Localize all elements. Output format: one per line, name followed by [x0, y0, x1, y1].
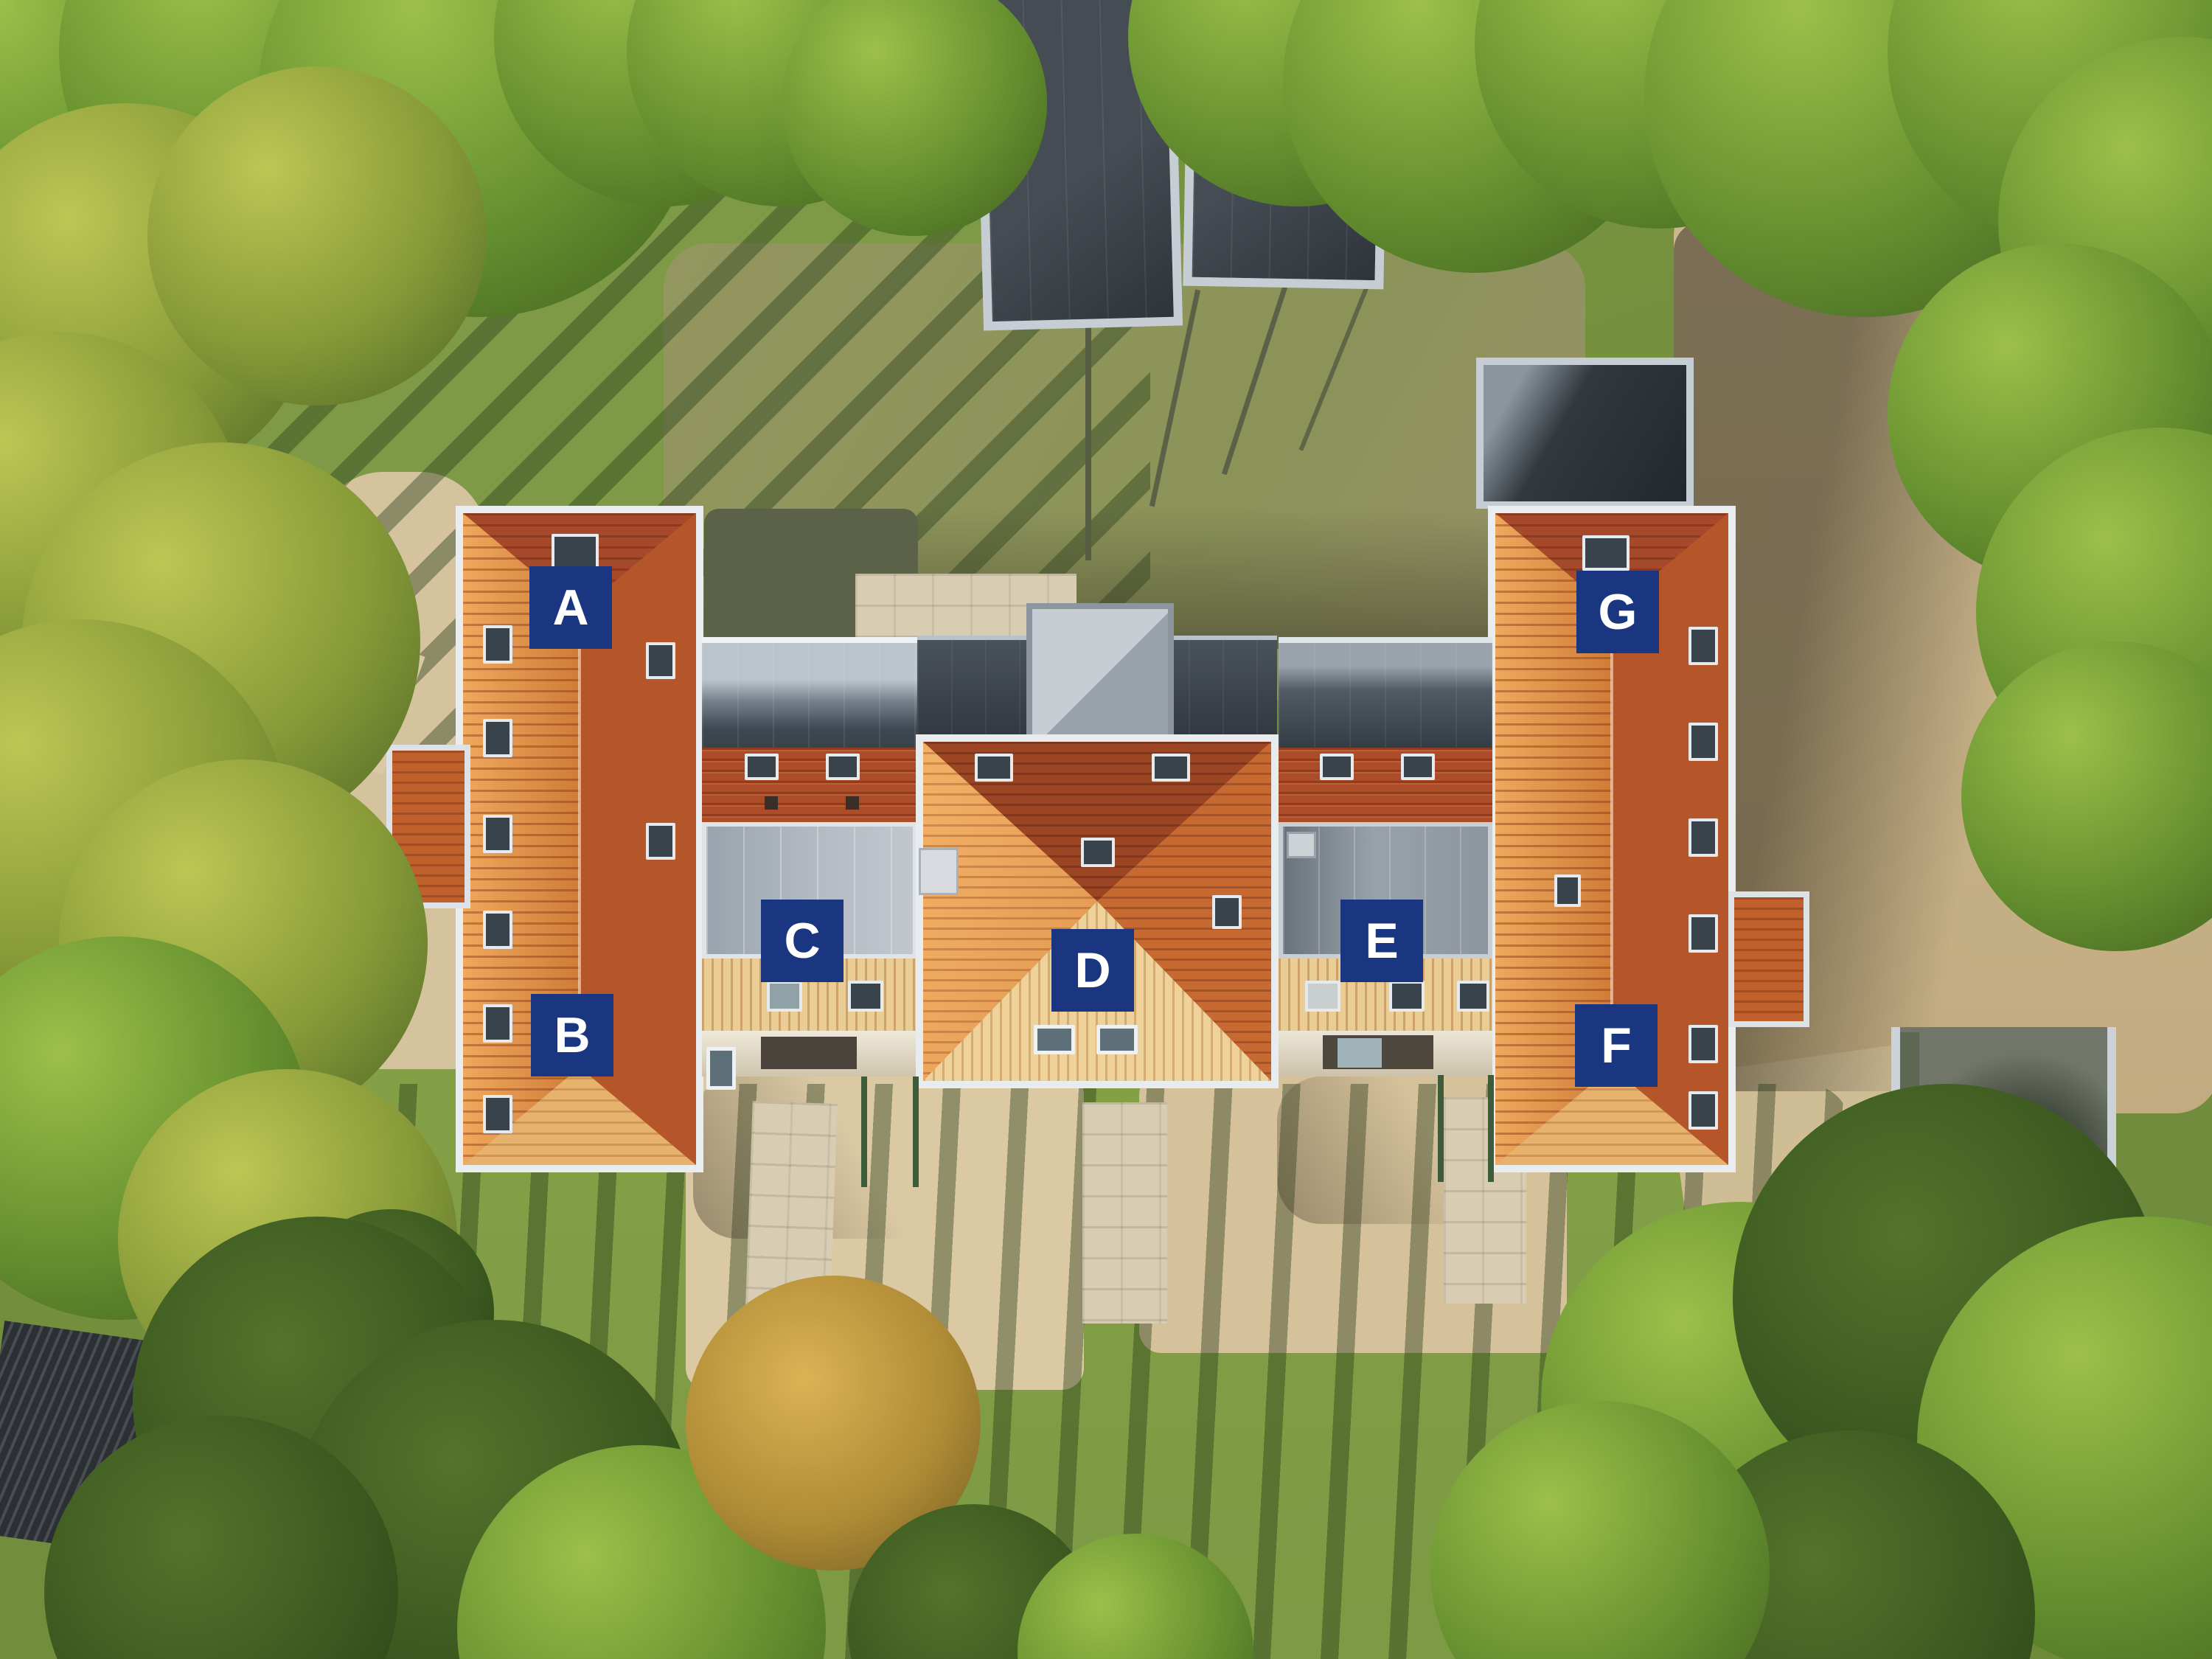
roof-chimney-box	[919, 848, 959, 895]
bar-c-north-flat-roof	[702, 637, 917, 748]
roof-skylight	[1401, 754, 1435, 780]
unit-label-letter: A	[552, 582, 588, 633]
roof-skylight	[1582, 535, 1630, 571]
roof-skylight	[767, 981, 802, 1012]
roof-skylight	[1305, 981, 1340, 1012]
roof-skylight	[826, 754, 860, 780]
roof-skylight	[1457, 981, 1489, 1012]
bar-e-north-flat-roof	[1279, 637, 1492, 748]
tree-canopy	[147, 66, 487, 406]
roof-vent	[846, 796, 859, 810]
wall-window	[706, 1047, 736, 1090]
paver-path-center	[1082, 1102, 1167, 1324]
roof-window	[1688, 914, 1718, 953]
roof-skylight	[848, 981, 883, 1012]
roof-window	[1688, 1091, 1718, 1130]
roof-window	[1688, 627, 1718, 665]
unit-label-b: B	[531, 994, 613, 1077]
roof-skylight	[552, 534, 599, 569]
unit-label-letter: G	[1599, 587, 1638, 637]
roof-window	[1688, 818, 1718, 857]
wall-window	[1034, 1025, 1075, 1054]
roof-window	[1554, 874, 1581, 907]
unit-label-f: F	[1575, 1004, 1658, 1087]
roof-skylight	[1320, 754, 1354, 780]
aerial-photo: A B C D E F G	[0, 0, 2212, 1659]
unit-label-a: A	[529, 566, 612, 649]
unit-label-letter: E	[1365, 916, 1398, 966]
roof-vent	[765, 796, 778, 810]
outbuilding-roof-east	[1476, 358, 1694, 509]
bar-c-north-tile-slope	[702, 748, 917, 822]
roof-window	[1688, 723, 1718, 761]
roof-window	[483, 625, 512, 664]
roof-skylight	[1212, 895, 1242, 929]
roof-window	[1688, 1025, 1718, 1063]
unit-label-g: G	[1576, 571, 1659, 653]
wall-window	[1096, 1025, 1138, 1054]
unit-label-letter: B	[554, 1010, 590, 1060]
unit-label-letter: C	[784, 916, 820, 966]
porch-post	[1438, 1075, 1444, 1182]
roof-skylight	[975, 754, 1013, 782]
roof-skylight	[745, 754, 779, 780]
entrance-glass-door	[1338, 1038, 1382, 1068]
unit-label-letter: D	[1074, 945, 1110, 995]
roof-skylight	[1081, 838, 1115, 867]
roof-window	[483, 719, 512, 757]
pole-shadow	[1085, 310, 1091, 560]
roof-window	[483, 911, 512, 949]
right-wing-east-projection	[1728, 891, 1809, 1027]
roof-skylight	[1152, 754, 1190, 782]
roof-window	[483, 815, 512, 853]
porch-post	[861, 1077, 867, 1187]
bar-e-north-tile-slope	[1279, 748, 1492, 822]
roof-vent-box	[1287, 832, 1316, 858]
roof-window	[646, 642, 675, 679]
unit-label-e: E	[1340, 900, 1423, 982]
unit-label-c: C	[761, 900, 844, 982]
bar-c-entrance-recess	[761, 1037, 857, 1069]
porch-post	[913, 1077, 919, 1187]
roof-window	[483, 1004, 512, 1043]
roof-window	[646, 823, 675, 860]
block-d-hip-roof	[916, 734, 1279, 1088]
unit-label-d: D	[1051, 929, 1134, 1012]
unit-label-letter: F	[1601, 1020, 1632, 1071]
porch-post	[1488, 1075, 1494, 1182]
roof-skylight	[1389, 981, 1425, 1012]
roof-window	[483, 1095, 512, 1133]
